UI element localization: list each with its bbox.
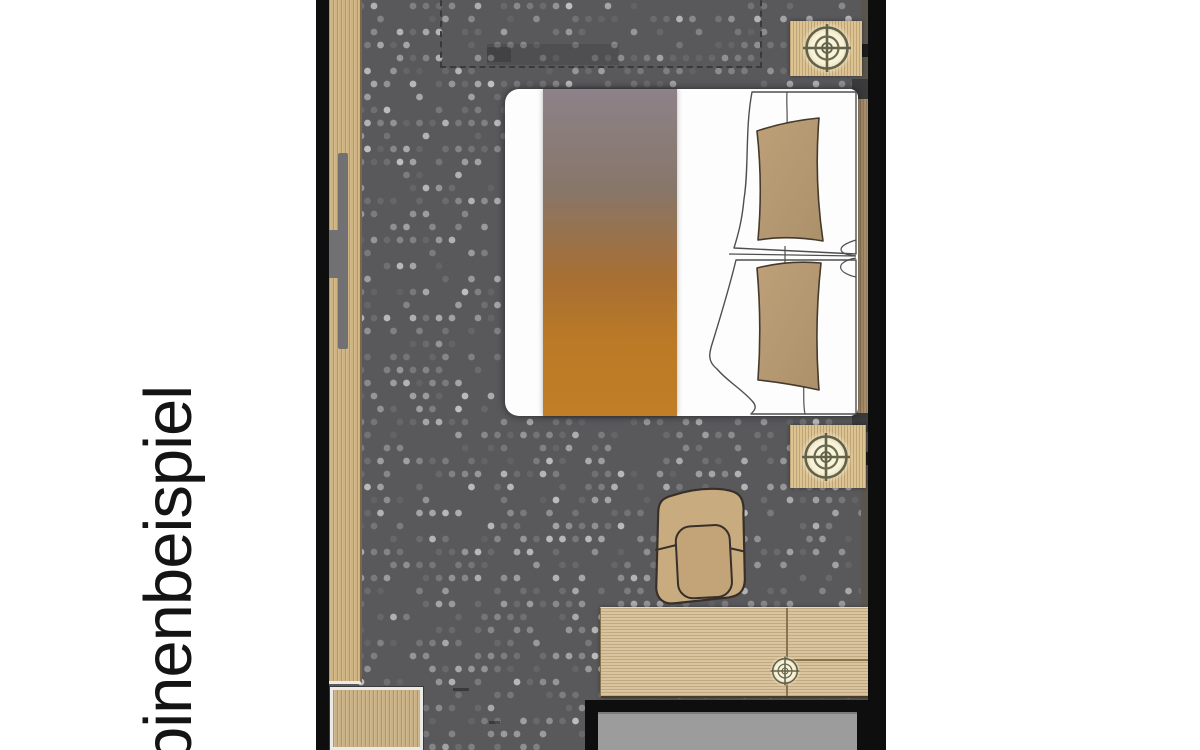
- bedside-lamp-icon: [796, 427, 856, 487]
- page-title: binenbeispiel: [130, 386, 207, 750]
- cabin-floorplan: binenbeispiel: [0, 0, 1200, 750]
- pillow-bottom: [757, 262, 821, 390]
- shower-unit: [330, 687, 423, 750]
- floor-mark: [489, 721, 500, 724]
- double-bed: [505, 89, 858, 416]
- wardrobe-handle: [338, 153, 348, 349]
- reading-lamp-icon: [749, 635, 785, 671]
- pillow-top: [757, 118, 823, 241]
- bed-pillows-graphic: [505, 89, 858, 416]
- bedside-lamp-icon: [797, 18, 857, 78]
- desk-drawer-seam: [788, 659, 869, 661]
- floor-mark: [453, 688, 469, 691]
- bathroom-floor: [598, 712, 857, 750]
- left-wall: [316, 0, 329, 750]
- sideboard-desk: [600, 607, 868, 698]
- overhead-shading-dark: [487, 47, 511, 62]
- bathroom: [585, 700, 886, 750]
- armchair: [646, 484, 748, 606]
- right-wall: [868, 0, 886, 750]
